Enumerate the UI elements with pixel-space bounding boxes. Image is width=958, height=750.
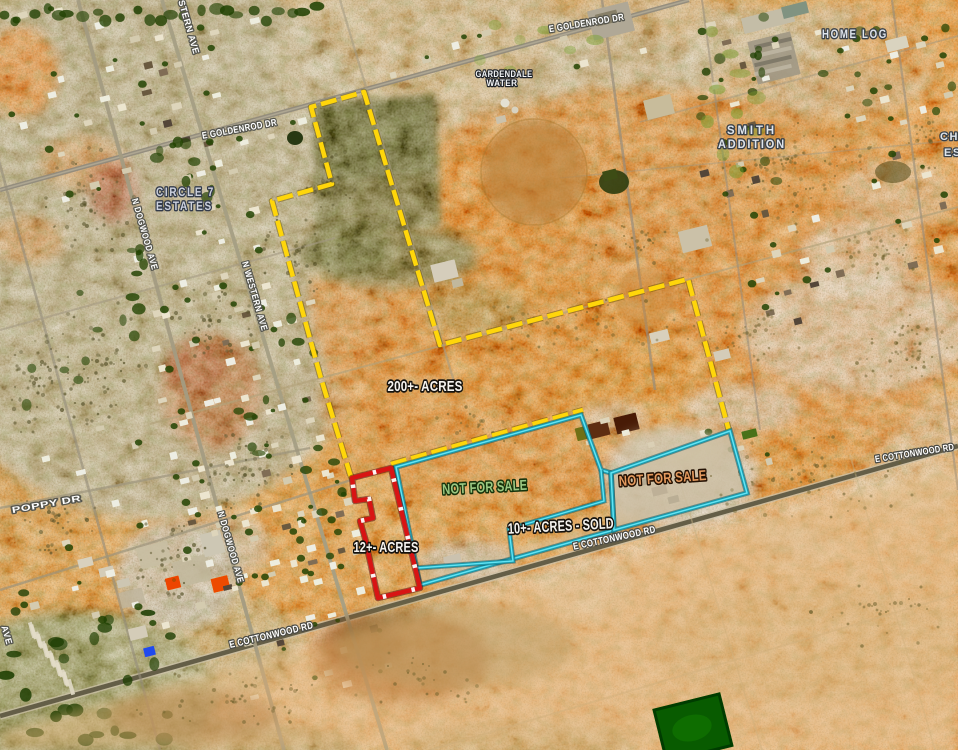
svg-text:ES: ES (944, 147, 958, 159)
svg-text:ESTATES: ESTATES (156, 201, 213, 213)
svg-text:12+- ACRES: 12+- ACRES (354, 539, 419, 556)
svg-text:WATER: WATER (487, 78, 518, 89)
svg-text:HOME LOG: HOME LOG (822, 29, 888, 41)
svg-text:CHI: CHI (940, 131, 958, 143)
svg-text:200+- ACRES: 200+- ACRES (388, 378, 463, 395)
svg-text:ADDITION: ADDITION (718, 139, 786, 151)
svg-text:SMITH: SMITH (727, 125, 777, 137)
svg-text:CIRCLE 7: CIRCLE 7 (156, 187, 215, 199)
